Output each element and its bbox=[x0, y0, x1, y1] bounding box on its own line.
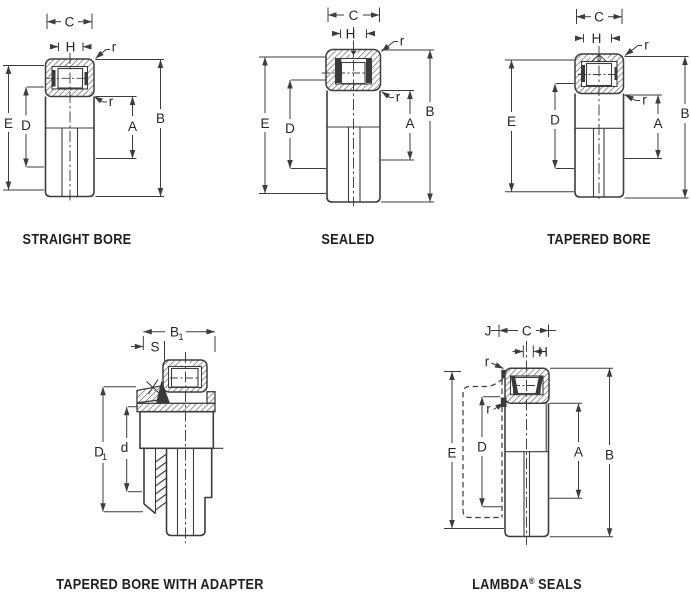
dim-label-e: E bbox=[447, 446, 456, 461]
dim-label-e: E bbox=[4, 116, 13, 131]
dim-label-c: C bbox=[65, 15, 75, 30]
dim-label-h: H bbox=[592, 31, 602, 46]
dim-label-e: E bbox=[507, 114, 516, 129]
outer-ring bbox=[322, 50, 381, 91]
caption-lambda-rest: SEALS bbox=[538, 576, 582, 593]
caption-tapered-bore: TAPERED BORE bbox=[531, 231, 667, 248]
dim-label-h: H bbox=[538, 344, 548, 359]
dim-label-d1-sub: 1 bbox=[102, 452, 107, 463]
dim-label-d: D bbox=[285, 121, 295, 136]
dim-label-a: A bbox=[405, 116, 414, 131]
dim-label-c: C bbox=[349, 8, 359, 23]
caption-sealed: SEALED bbox=[280, 231, 416, 248]
dim-label-e: E bbox=[260, 116, 269, 131]
dim-label-b: B bbox=[156, 111, 165, 126]
dim-label-c: C bbox=[594, 10, 604, 25]
dim-label-b: B bbox=[425, 104, 434, 119]
caption-lambda-seals: LAMBDA®SEALS bbox=[417, 576, 638, 593]
dim-label-r-top: r bbox=[112, 40, 117, 55]
dim-label-r-top: r bbox=[644, 38, 649, 53]
dim-label-b: B bbox=[680, 106, 689, 121]
lambda-seals-drawing: J C H r r E bbox=[444, 323, 614, 545]
dim-label-r-bottom: r bbox=[486, 402, 491, 417]
dimension-annotations: C H r r E bbox=[259, 8, 435, 203]
dim-label-r-top: r bbox=[400, 34, 405, 49]
dim-label-d: D bbox=[21, 118, 31, 133]
dim-label-h: H bbox=[66, 40, 76, 55]
dim-label-d: D bbox=[550, 113, 560, 128]
dim-label-j: J bbox=[485, 323, 492, 338]
registered-trademark-symbol: ® bbox=[529, 576, 535, 586]
dimension-annotations: C H r r E bbox=[505, 9, 690, 198]
dim-label-b1-sub: 1 bbox=[178, 332, 183, 343]
dim-label-b: B bbox=[605, 448, 614, 463]
tapered-bore-drawing: C H r r E bbox=[505, 9, 690, 202]
dim-label-d-lower: d bbox=[121, 440, 129, 455]
sealed-drawing: C H r r E bbox=[259, 8, 435, 207]
dim-label-a: A bbox=[574, 445, 583, 460]
tapered-bore-with-adapter-drawing: B 1 S D 1 d bbox=[94, 325, 223, 544]
dim-label-r-top: r bbox=[485, 354, 490, 369]
dimension-annotations: B 1 S D 1 d bbox=[94, 325, 215, 512]
caption-straight-bore: STRAIGHT BORE bbox=[9, 231, 145, 248]
dim-label-h: H bbox=[346, 26, 356, 41]
dim-label-r-bottom: r bbox=[396, 90, 401, 105]
dim-label-s: S bbox=[150, 339, 159, 354]
straight-bore-drawing: C H r r E bbox=[3, 14, 165, 202]
dimension-annotations: C H r r E bbox=[3, 14, 165, 197]
dim-label-a: A bbox=[653, 116, 662, 131]
bearing-dimension-figure: C H r r E bbox=[0, 0, 691, 602]
caption-tapered-bore-with-adapter: TAPERED BORE WITH ADAPTER bbox=[50, 576, 271, 593]
dim-label-c: C bbox=[522, 323, 532, 338]
outer-ring bbox=[163, 360, 207, 392]
caption-lambda-brand: LAMBDA bbox=[472, 576, 529, 593]
outer-ring bbox=[505, 368, 549, 403]
dim-label-a: A bbox=[128, 119, 137, 134]
technical-drawing-canvas: C H r r E bbox=[0, 0, 691, 602]
dim-label-d: D bbox=[477, 440, 487, 455]
